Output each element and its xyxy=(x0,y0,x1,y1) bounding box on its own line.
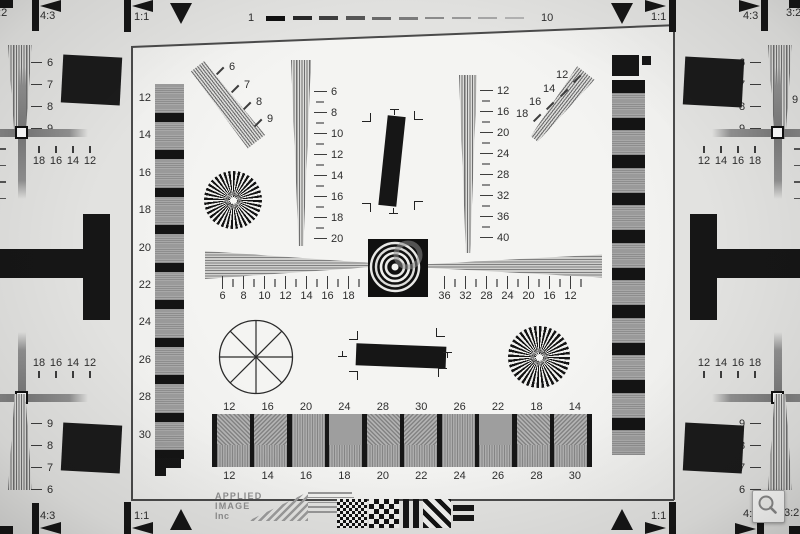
frequency-block xyxy=(554,414,587,467)
step-wedge-column xyxy=(155,84,184,459)
ruler-dash xyxy=(452,17,471,19)
arrow-left-icon xyxy=(132,522,153,534)
vertical-scale: 1216202428323640 xyxy=(480,80,509,248)
pattern-segment xyxy=(155,188,184,197)
pattern-segment xyxy=(155,197,184,226)
frequency-block xyxy=(254,414,287,467)
step-number: 16 xyxy=(131,167,151,204)
frequency-block xyxy=(404,414,437,467)
pattern-segment xyxy=(554,414,587,445)
aspect-ratio-label: 3:2 xyxy=(0,8,7,19)
block-separator xyxy=(587,414,592,467)
corner-mark xyxy=(789,526,800,534)
pattern-segment xyxy=(155,338,184,347)
block-number: 18 xyxy=(325,470,363,482)
scale-number: 14 xyxy=(66,146,80,167)
spoked-circle-target xyxy=(217,318,295,396)
registration-bar xyxy=(669,502,676,534)
corner-mark xyxy=(0,526,13,534)
horizontal-scale: 681012141618 xyxy=(212,276,359,302)
scale-number: 18 xyxy=(338,276,359,302)
pattern-segment xyxy=(155,263,184,272)
pattern-segment xyxy=(155,225,184,234)
horizontal-scale: 36322824201612 xyxy=(434,276,581,302)
t-mark xyxy=(443,352,452,359)
wedge-number: 7 xyxy=(244,79,250,91)
frame-bracket xyxy=(362,113,371,122)
scale-number: 14 xyxy=(296,276,317,302)
ruler-dash xyxy=(266,16,285,21)
pattern-segment xyxy=(155,122,184,151)
checkerboard-coarse xyxy=(369,499,399,528)
scale-number: 16 xyxy=(480,101,509,122)
pattern-segment xyxy=(155,272,184,301)
aspect-ratio-label: 1:1 xyxy=(651,12,666,23)
wedge-number: 18 xyxy=(516,108,528,120)
diagonal-stripe-pattern xyxy=(423,499,451,528)
pattern-segment xyxy=(155,159,184,188)
pattern-segment xyxy=(612,193,645,206)
pattern-segment xyxy=(612,430,645,455)
frame-bracket xyxy=(349,331,358,340)
scale-number: 16 xyxy=(731,146,745,167)
wedge-number: 8 xyxy=(256,96,262,108)
edge-number-column: 9876 xyxy=(31,418,53,495)
edge-mini-scale: 12141618 xyxy=(697,146,762,167)
pattern-segment xyxy=(155,413,184,422)
scale-number: 12 xyxy=(275,276,296,302)
block-number: 20 xyxy=(287,401,325,413)
registration-cross xyxy=(0,67,88,199)
zone-plate-rings xyxy=(368,239,428,297)
scale-number: 6 xyxy=(314,81,343,102)
scale-number: 28 xyxy=(480,164,509,185)
scale-number: 20 xyxy=(480,122,509,143)
ruler-dash xyxy=(505,17,524,19)
block-number: 24 xyxy=(440,470,478,482)
arrow-right-icon xyxy=(735,523,756,534)
pattern-segment xyxy=(479,445,512,467)
pattern-segment xyxy=(612,118,645,131)
vertical-bar-pattern xyxy=(403,499,409,528)
frequency-block xyxy=(329,414,362,467)
wedge-labels: 6789 xyxy=(205,58,295,138)
block-number: 22 xyxy=(402,470,440,482)
scale-number: 20 xyxy=(314,228,343,249)
pattern-segment xyxy=(292,445,325,467)
aspect-ratio-label: 1:1 xyxy=(651,511,666,522)
edge-number: 6 xyxy=(31,484,53,495)
pattern-segment xyxy=(612,393,645,418)
t-mark xyxy=(338,350,347,357)
wedge-number: 16 xyxy=(529,96,541,108)
step-number: 28 xyxy=(131,391,151,428)
scale-number: 18 xyxy=(748,146,762,167)
block-number: 28 xyxy=(517,470,555,482)
checkerboard-fine xyxy=(337,499,367,528)
ruler-dash xyxy=(319,16,338,20)
pattern-segment xyxy=(367,445,400,467)
pattern-segment xyxy=(254,414,287,445)
logo-text-image: IMAGE xyxy=(215,502,251,511)
pattern-segment xyxy=(517,445,550,467)
t-mark xyxy=(389,207,398,214)
t-target-crossbar xyxy=(690,214,717,320)
hook-mark xyxy=(155,458,181,468)
frequency-block xyxy=(367,414,400,467)
t-target-stem xyxy=(0,249,84,278)
pattern-segment xyxy=(404,414,437,445)
edge-number: 7 xyxy=(31,462,53,473)
pattern-segment xyxy=(155,300,184,309)
step-number: 14 xyxy=(131,129,151,166)
pattern-segment xyxy=(517,414,550,445)
block-number: 12 xyxy=(210,401,248,413)
registration-bar xyxy=(124,0,131,32)
pattern-segment xyxy=(612,355,645,380)
zone-plate-target xyxy=(368,239,428,297)
wedge-number: 6 xyxy=(229,61,235,73)
pattern-segment xyxy=(217,445,250,467)
pattern-segment xyxy=(479,414,512,445)
scale-number: 12 xyxy=(697,357,711,378)
edge-number: 7 xyxy=(739,462,761,473)
scale-number: 24 xyxy=(480,143,509,164)
pattern-segment xyxy=(612,205,645,230)
arrow-left-icon xyxy=(40,522,61,534)
frame-bracket xyxy=(436,328,445,337)
registration-square xyxy=(771,126,784,139)
block-number: 24 xyxy=(325,401,363,413)
cross-arm-horizontal xyxy=(712,394,800,402)
step-number: 22 xyxy=(131,279,151,316)
scale-number: 10 xyxy=(314,123,343,144)
registration-square xyxy=(15,126,28,139)
scale-number: 18 xyxy=(32,146,46,167)
scale-number: 14 xyxy=(714,146,728,167)
wedge-number: 14 xyxy=(543,83,555,95)
frequency-block xyxy=(517,414,550,467)
zoom-button[interactable] xyxy=(752,490,785,523)
pattern-segment xyxy=(155,150,184,159)
black-square-patch xyxy=(683,422,744,473)
aspect-ratio-label: 1:1 xyxy=(134,511,149,522)
ruler-dash-strip xyxy=(266,13,534,23)
scale-number: 12 xyxy=(560,276,581,302)
wedge-number: 9 xyxy=(267,113,273,125)
pattern-segment xyxy=(612,243,645,268)
magnifier-icon xyxy=(753,491,782,520)
pattern-segment xyxy=(254,445,287,467)
pattern-segment xyxy=(155,375,184,384)
edge-number: 9 xyxy=(31,418,53,429)
pattern-segment xyxy=(612,305,645,318)
frame-bracket xyxy=(438,368,447,377)
scale-number: 16 xyxy=(49,146,63,167)
arrow-right-icon xyxy=(645,522,666,534)
block-number: 26 xyxy=(440,401,478,413)
cross-arm-horizontal xyxy=(712,129,800,137)
cross-arm-horizontal xyxy=(0,394,88,402)
arrow-up-icon xyxy=(611,509,633,530)
frequency-block xyxy=(479,414,512,467)
frame-bracket xyxy=(414,201,423,210)
registration-cross xyxy=(712,67,800,199)
block-number: 20 xyxy=(364,470,402,482)
frame-bracket xyxy=(414,111,423,120)
pattern-segment xyxy=(612,318,645,343)
pattern-segment xyxy=(155,84,184,113)
pattern-segment xyxy=(155,309,184,338)
pattern-segment xyxy=(367,414,400,445)
horizontal-bar-pattern xyxy=(453,515,474,521)
edge-number: 8 xyxy=(31,440,53,451)
block-number: 14 xyxy=(556,401,594,413)
scale-number: 28 xyxy=(476,276,497,302)
t-target-crossbar xyxy=(83,214,110,320)
scale-number: 16 xyxy=(314,186,343,207)
ruler-dash xyxy=(372,17,391,20)
aspect-ratio-label: 4:3 xyxy=(40,511,55,522)
pattern-segment xyxy=(612,168,645,193)
scale-number: 20 xyxy=(518,276,539,302)
pattern-segment xyxy=(292,414,325,445)
step-wedge-labels: 12141618202224262830 xyxy=(131,92,151,466)
slanted-bar-target xyxy=(356,343,447,368)
scale-number: 24 xyxy=(497,276,518,302)
pattern-segment xyxy=(612,130,645,155)
corner-mark xyxy=(789,0,800,8)
ruler-dash xyxy=(346,16,365,20)
block-number: 12 xyxy=(210,470,248,482)
aspect-ratio-label: 4:3 xyxy=(743,11,758,22)
pattern-segment xyxy=(155,113,184,122)
aspect-ratio-label: 3:2 xyxy=(784,508,799,519)
scale-number: 6 xyxy=(212,276,233,302)
scale-number: 12 xyxy=(83,146,97,167)
pattern-segment xyxy=(155,422,184,451)
scale-number: 36 xyxy=(480,206,509,227)
pattern-segment xyxy=(612,268,645,281)
pattern-segment xyxy=(612,155,645,168)
test-chart-photo: 3:2 4:3 1:1 1 10 1:1 4:3 3:2 4:3 1:1 1:1… xyxy=(0,0,800,534)
block-number: 16 xyxy=(287,470,325,482)
block-number: 14 xyxy=(248,470,286,482)
registration-bar xyxy=(669,0,676,32)
step-wedge-column xyxy=(612,80,645,455)
pattern-segment xyxy=(612,343,645,356)
registration-bar xyxy=(32,503,39,534)
aspect-ratio-label: 3:2 xyxy=(786,8,800,19)
ruler-dash xyxy=(425,17,444,20)
frequency-blocks xyxy=(212,414,592,467)
pattern-segment xyxy=(217,414,250,445)
ruler-end-label: 10 xyxy=(541,13,553,24)
pattern-segment xyxy=(404,445,437,467)
block-number: 30 xyxy=(556,470,594,482)
pattern-segment xyxy=(329,414,362,445)
scale-number: 40 xyxy=(480,227,509,248)
step-number: 18 xyxy=(131,204,151,241)
t-target-stem xyxy=(717,249,800,278)
siemens-star xyxy=(204,171,262,229)
edge-mini-scale: 18161412 xyxy=(32,146,97,167)
block-number: 16 xyxy=(248,401,286,413)
scale-number: 32 xyxy=(455,276,476,302)
pattern-segment xyxy=(442,445,475,467)
logo-text-inc: Inc xyxy=(215,512,230,521)
pattern-segment xyxy=(612,80,645,93)
pattern-segment xyxy=(612,418,645,431)
frame-bracket xyxy=(349,371,358,380)
address-line xyxy=(308,492,352,494)
hook-mark xyxy=(642,56,651,65)
step-number: 12 xyxy=(131,92,151,129)
pattern-segment xyxy=(155,234,184,263)
arrow-down-icon xyxy=(611,3,633,24)
block-number: 28 xyxy=(364,401,402,413)
vertical-bar-pattern xyxy=(413,499,419,528)
frame-bracket xyxy=(362,203,371,212)
siemens-star xyxy=(508,326,570,388)
scale-number: 10 xyxy=(254,276,275,302)
step-number: 24 xyxy=(131,316,151,353)
block-number: 30 xyxy=(402,401,440,413)
pattern-segment xyxy=(155,384,184,413)
block-number: 22 xyxy=(479,401,517,413)
scale-number: 14 xyxy=(314,165,343,186)
wedge-labels: 12141618 xyxy=(512,62,592,132)
pattern-segment xyxy=(442,414,475,445)
ruler-start-label: 1 xyxy=(248,13,254,24)
scale-number: 8 xyxy=(233,276,254,302)
scale-number: 36 xyxy=(434,276,455,302)
arrow-down-icon xyxy=(170,3,192,24)
block-number: 26 xyxy=(479,470,517,482)
wedge-number: 12 xyxy=(556,69,568,81)
vertical-scale: 68101214161820 xyxy=(314,81,343,249)
scale-number: 32 xyxy=(480,185,509,206)
registration-bar xyxy=(32,0,39,31)
scale-number: 8 xyxy=(314,102,343,123)
chart-border-right xyxy=(673,25,675,500)
registration-bar xyxy=(761,0,768,31)
scale-number: 12 xyxy=(697,146,711,167)
hook-mark xyxy=(155,468,166,476)
frequency-block xyxy=(442,414,475,467)
hook-mark xyxy=(612,55,639,76)
step-number: 20 xyxy=(131,242,151,279)
aspect-ratio-label: 4:3 xyxy=(40,11,55,22)
arrow-up-icon xyxy=(170,509,192,530)
horizontal-bar-pattern xyxy=(453,505,474,511)
scale-number: 16 xyxy=(539,276,560,302)
frequency-block xyxy=(292,414,325,467)
ruler-dash xyxy=(478,17,497,19)
scale-number: 12 xyxy=(314,144,343,165)
cross-arm-horizontal xyxy=(0,129,88,137)
aspect-ratio-label: 1:1 xyxy=(134,12,149,23)
pattern-segment xyxy=(612,380,645,393)
pattern-segment xyxy=(554,445,587,467)
blocks-top-labels: 12162024283026221814 xyxy=(210,401,594,413)
pattern-segment xyxy=(329,445,362,467)
block-number: 18 xyxy=(517,401,555,413)
black-square-patch xyxy=(61,422,122,473)
pattern-segment xyxy=(612,93,645,118)
ruler-dash xyxy=(399,17,418,20)
logo-text-applied: APPLIED xyxy=(215,492,262,501)
blocks-bottom-labels: 12141618202224262830 xyxy=(210,470,594,482)
pattern-segment xyxy=(612,230,645,243)
step-number: 30 xyxy=(131,429,151,466)
scale-number: 16 xyxy=(317,276,338,302)
step-number: 26 xyxy=(131,354,151,391)
frequency-block xyxy=(217,414,250,467)
registration-bar xyxy=(124,502,131,534)
ruler-dash xyxy=(293,16,312,21)
pattern-segment xyxy=(612,280,645,305)
scale-number: 12 xyxy=(480,80,509,101)
pattern-segment xyxy=(155,347,184,376)
scale-number: 18 xyxy=(314,207,343,228)
